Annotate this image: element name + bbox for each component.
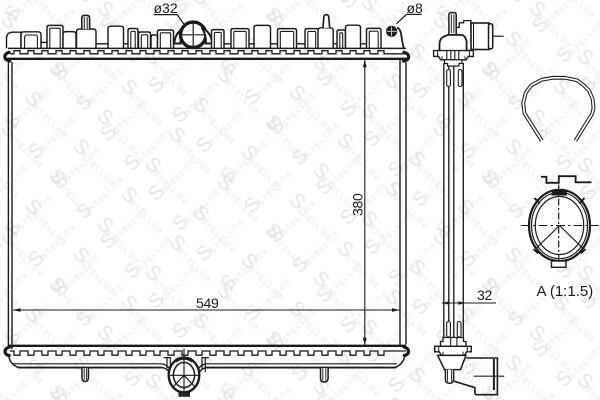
svg-text:A (1:1.5): A (1:1.5) [537, 283, 594, 300]
svg-text:ø32: ø32 [154, 0, 178, 16]
svg-text:32: 32 [477, 287, 492, 303]
svg-text:ø8: ø8 [407, 0, 424, 16]
svg-text:380: 380 [350, 193, 366, 216]
svg-text:549: 549 [196, 295, 219, 311]
